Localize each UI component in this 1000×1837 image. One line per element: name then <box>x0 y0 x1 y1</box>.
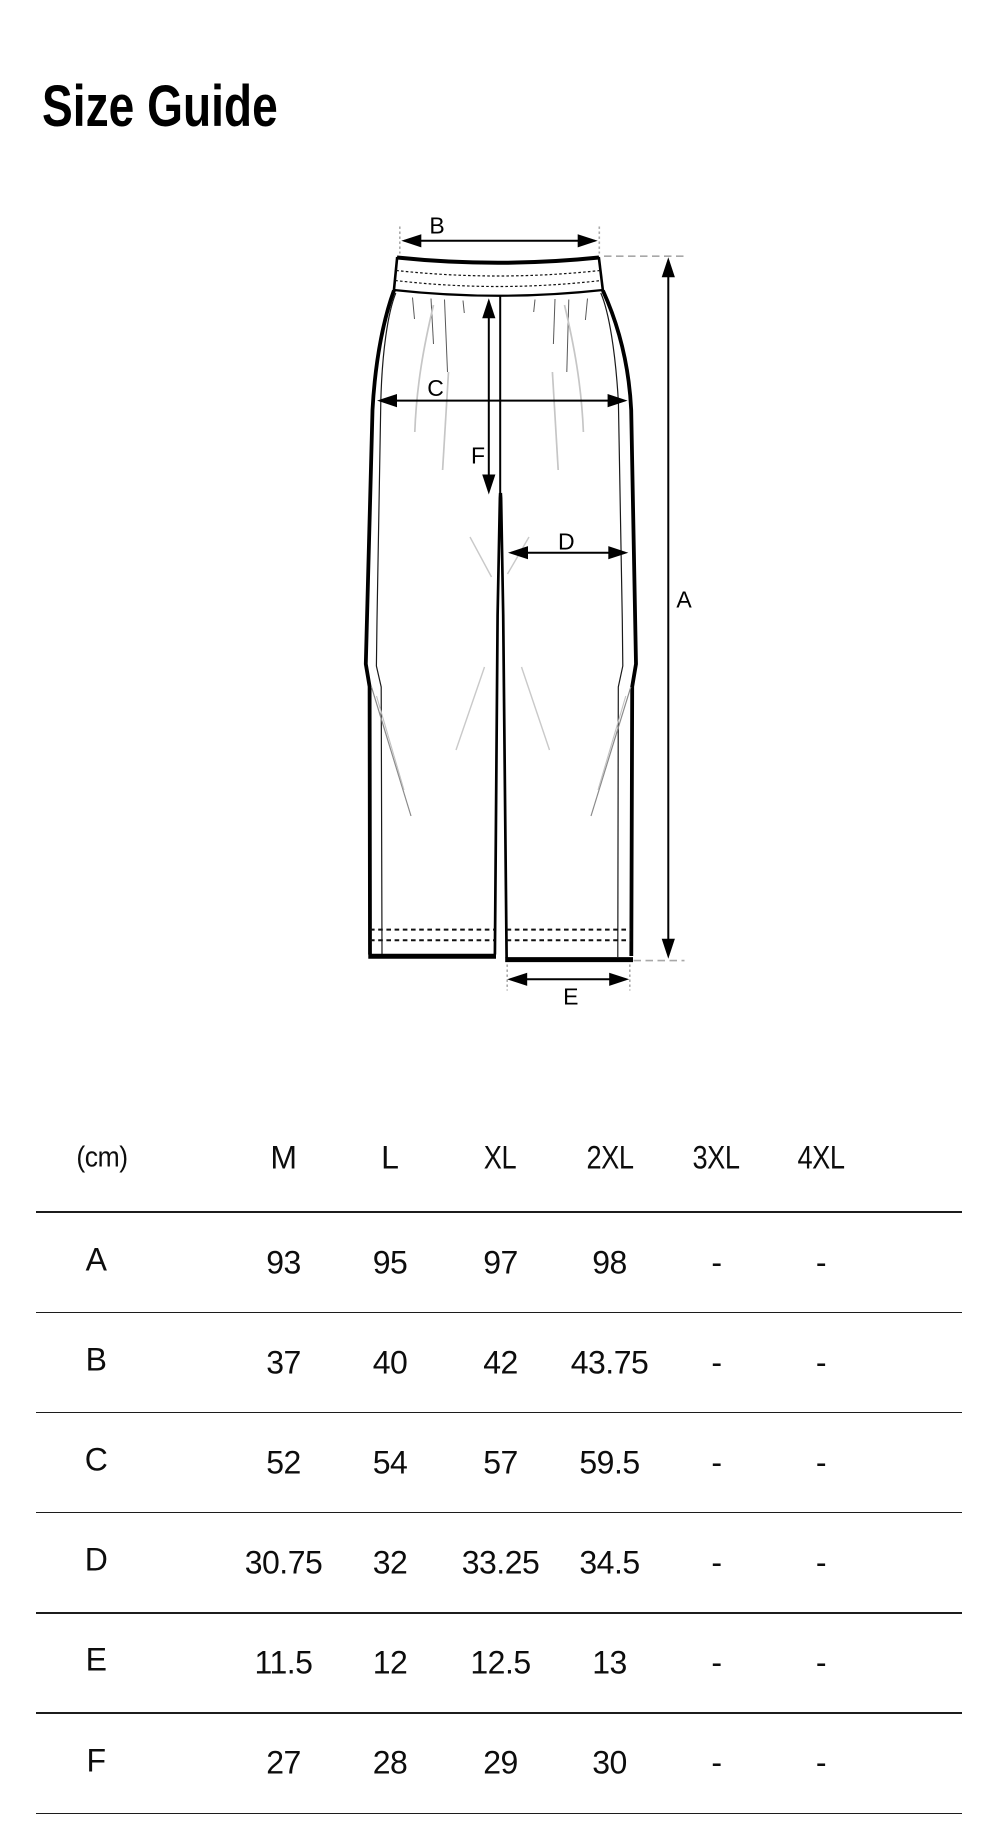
svg-text:D: D <box>558 529 575 555</box>
svg-text:F: F <box>471 443 485 469</box>
svg-text:C: C <box>427 375 444 401</box>
svg-text:B: B <box>429 213 444 239</box>
svg-text:A: A <box>676 587 692 613</box>
svg-text:E: E <box>563 984 578 1010</box>
